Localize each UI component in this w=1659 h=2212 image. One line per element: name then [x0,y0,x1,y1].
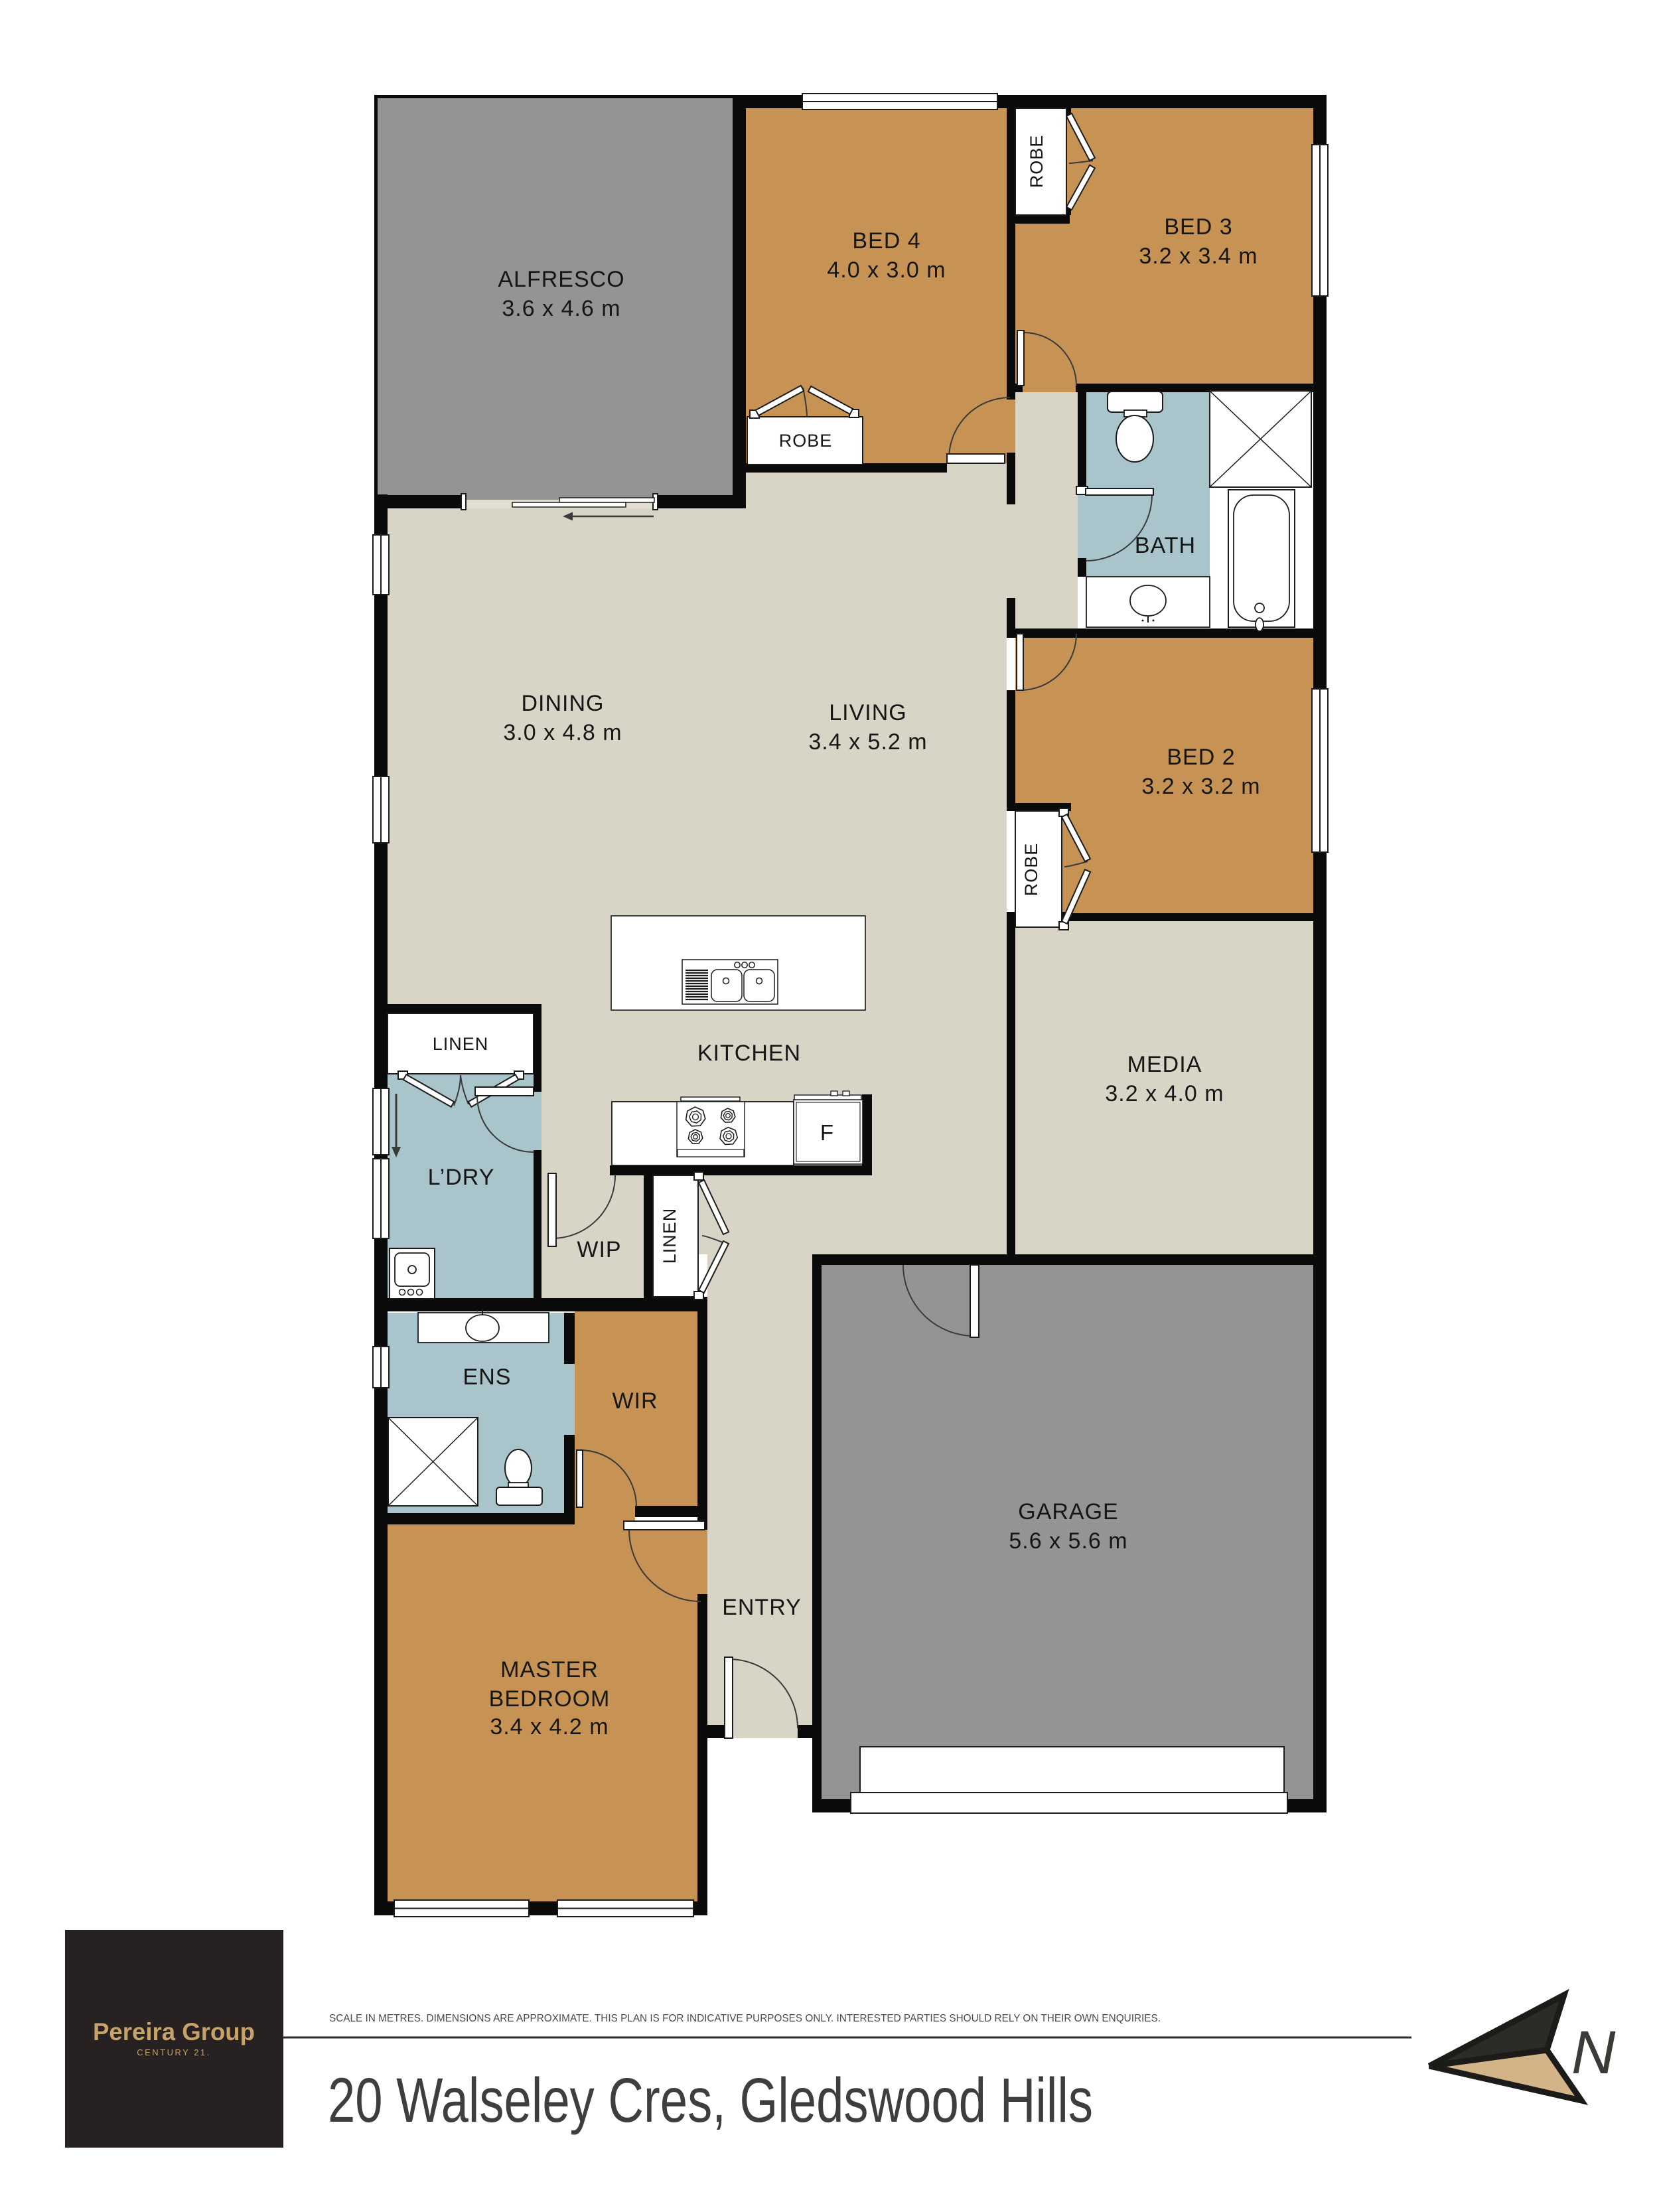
svg-text:ENTRY: ENTRY [722,1595,802,1620]
svg-text:BEDROOM: BEDROOM [489,1686,611,1712]
svg-text:ROBE: ROBE [1027,135,1046,188]
svg-text:3.2 x 3.2 m: 3.2 x 3.2 m [1141,774,1260,799]
svg-text:F: F [820,1120,833,1145]
svg-text:20 Walseley Cres, Gledswood Hi: 20 Walseley Cres, Gledswood Hills [328,2065,1093,2136]
svg-text:3.6 x 4.6 m: 3.6 x 4.6 m [502,296,620,321]
svg-text:3.0 x 4.8 m: 3.0 x 4.8 m [503,720,622,745]
svg-text:LINEN: LINEN [660,1208,680,1264]
svg-text:LIVING: LIVING [829,700,906,725]
svg-text:CENTURY 21.: CENTURY 21. [137,2047,211,2057]
svg-text:ALFRESCO: ALFRESCO [498,267,624,292]
svg-text:GARAGE: GARAGE [1018,1499,1118,1524]
svg-text:WIR: WIR [612,1388,658,1414]
svg-text:3.4 x 5.2 m: 3.4 x 5.2 m [808,729,927,755]
svg-text:BED 2: BED 2 [1167,745,1235,770]
svg-text:Pereira Group: Pereira Group [93,2018,255,2045]
svg-text:BED 3: BED 3 [1164,214,1232,240]
svg-text:BATH: BATH [1135,533,1196,558]
svg-text:3.4 x 4.2 m: 3.4 x 4.2 m [490,1714,609,1739]
svg-text:N: N [1571,2019,1616,2087]
svg-text:4.0 x 3.0 m: 4.0 x 3.0 m [827,258,946,283]
svg-text:ENS: ENS [463,1364,512,1390]
svg-text:3.2 x 4.0 m: 3.2 x 4.0 m [1105,1081,1224,1106]
svg-text:LINEN: LINEN [433,1034,489,1054]
svg-text:DINING: DINING [522,691,605,716]
svg-text:ROBE: ROBE [1021,843,1041,897]
svg-text:WIP: WIP [577,1237,621,1262]
svg-text:ROBE: ROBE [779,431,833,451]
svg-text:5.6 x 5.6 m: 5.6 x 5.6 m [1009,1528,1127,1554]
svg-text:KITCHEN: KITCHEN [697,1041,801,1066]
svg-text:L’DRY: L’DRY [428,1165,495,1190]
svg-text:BED 4: BED 4 [852,228,920,254]
svg-text:MASTER: MASTER [500,1657,599,1682]
svg-text:MEDIA: MEDIA [1127,1052,1202,1077]
svg-text:SCALE IN METRES. DIMENSIONS AR: SCALE IN METRES. DIMENSIONS ARE APPROXIM… [329,2013,1161,2024]
svg-text:3.2 x 3.4 m: 3.2 x 3.4 m [1139,244,1258,269]
